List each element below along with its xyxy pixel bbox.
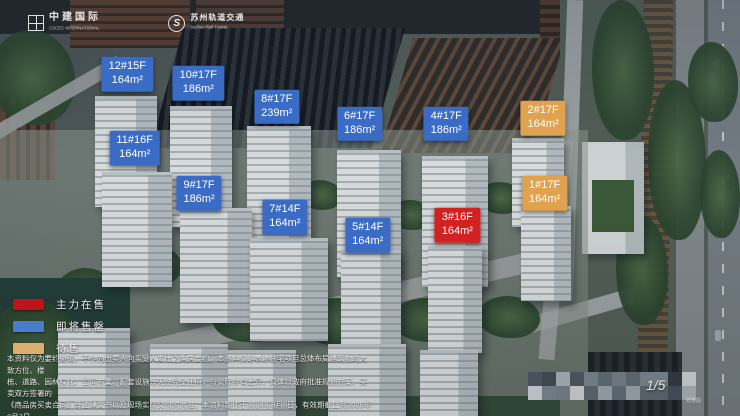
developer-logo-subtitle: CSCEC INTERNATIONAL (49, 26, 100, 30)
developer-logo: 中建国际 CSCEC INTERNATIONAL (28, 13, 154, 33)
building-id: 6#17F (344, 110, 375, 124)
disclaimer-line: 《商品房买卖合同》等法律文书以及现场实际交付的为准。本资料制作于2024年8月8… (7, 399, 373, 416)
legend-row-red: 主力在售 (13, 297, 106, 312)
mosaic-tile (570, 372, 584, 386)
legend-swatch-red (13, 299, 44, 310)
mosaic-tile (584, 386, 598, 400)
building-id: 12#15F (109, 60, 146, 74)
rail-transit-logo: S 苏州轨道交通 Suzhou Rail Transit (168, 14, 268, 32)
building-label-6: 6#17F186m² (337, 107, 382, 142)
disclaimer-line: 本资料仅为要约邀请，不作为出卖人向买受人发出之购房要约。本资料仅是表述住宅项目总… (7, 353, 373, 376)
unit-area: 164m² (109, 74, 146, 88)
corner-watermark: 效果图 (686, 396, 701, 404)
unit-area: 186m² (180, 83, 217, 97)
mosaic-tile (570, 386, 584, 400)
building-id: 9#17F (183, 179, 214, 193)
unit-area: 164m² (352, 235, 383, 249)
mosaic-tile (556, 372, 570, 386)
building-id: 4#17F (431, 110, 462, 124)
mosaic-tile (612, 372, 626, 386)
mosaic-tile (626, 386, 640, 400)
legend-swatch-blue (13, 321, 44, 332)
rail-transit-logo-subtitle: Suzhou Rail Transit (190, 25, 227, 29)
unit-area: 186m² (344, 123, 375, 137)
building-id: 10#17F (180, 69, 217, 83)
developer-logo-name: 中建国际 (49, 13, 154, 23)
mosaic-tile (528, 386, 542, 400)
building-label-2: 2#17F164m² (521, 101, 566, 136)
building-id: 8#17F (261, 93, 292, 107)
legend-label: 主力在售 (56, 297, 106, 312)
rail-transit-logo-name: 苏州轨道交通 (190, 14, 268, 22)
image-pager: 1/5 (646, 377, 665, 393)
sales-map-image: 12#15F164m²10#17F186m²8#17F239m²6#17F186… (0, 0, 740, 416)
legend-label: 即将售罄 (56, 319, 106, 334)
mosaic-tile (668, 372, 682, 386)
building-label-9: 9#17F186m² (176, 176, 221, 211)
disclaimer-line: 栋、道路、园林绿化、空间布置、配套设施等无法完全还原，与实际存有差异，具体以政府… (7, 376, 373, 399)
unit-area: 164m² (529, 193, 560, 207)
mosaic-tile (528, 372, 542, 386)
building-id: 11#16F (116, 134, 153, 148)
mosaic-tile (598, 372, 612, 386)
building-label-7: 7#14F164m² (262, 200, 307, 235)
building-label-8: 8#17F239m² (254, 90, 299, 125)
mosaic-tile (542, 386, 556, 400)
unit-area: 164m² (116, 148, 153, 162)
mosaic-tile (556, 386, 570, 400)
mosaic-tile (598, 386, 612, 400)
disclaimer-text: 本资料仅为要约邀请，不作为出卖人向买受人发出之购房要约。本资料仅是表述住宅项目总… (7, 353, 373, 416)
building-label-3: 3#16F164m² (435, 208, 480, 243)
unit-area: 164m² (528, 118, 559, 132)
building-label-4: 4#17F186m² (424, 107, 469, 142)
legend-row-blue: 即将售罄 (13, 319, 106, 334)
building-id: 2#17F (528, 104, 559, 118)
building-label-12: 12#15F164m² (102, 57, 153, 92)
building-id: 3#16F (442, 211, 473, 225)
brand-logos: 中建国际 CSCEC INTERNATIONAL S 苏州轨道交通 Suzhou… (28, 13, 268, 33)
building-label-10: 10#17F186m² (173, 66, 224, 101)
unit-area: 186m² (183, 193, 214, 207)
mosaic-tile (584, 372, 598, 386)
unit-area: 186m² (431, 123, 462, 137)
mosaic-tile (682, 372, 696, 386)
mosaic-tile (612, 386, 626, 400)
building-label-11: 11#16F164m² (109, 131, 160, 166)
square-seal-icon (28, 15, 44, 31)
building-id: 5#14F (352, 221, 383, 235)
mosaic-tile (542, 372, 556, 386)
mosaic-tile (668, 386, 682, 400)
unit-area: 164m² (269, 217, 300, 231)
unit-area: 239m² (261, 106, 292, 120)
building-label-1: 1#17F164m² (522, 176, 567, 211)
mosaic-tile (626, 372, 640, 386)
unit-area: 164m² (442, 225, 473, 239)
building-id: 7#14F (269, 203, 300, 217)
building-id: 1#17F (529, 179, 560, 193)
s-mark-icon: S (168, 15, 185, 32)
censored-watermark (528, 372, 696, 400)
building-label-5: 5#14F164m² (345, 218, 390, 253)
